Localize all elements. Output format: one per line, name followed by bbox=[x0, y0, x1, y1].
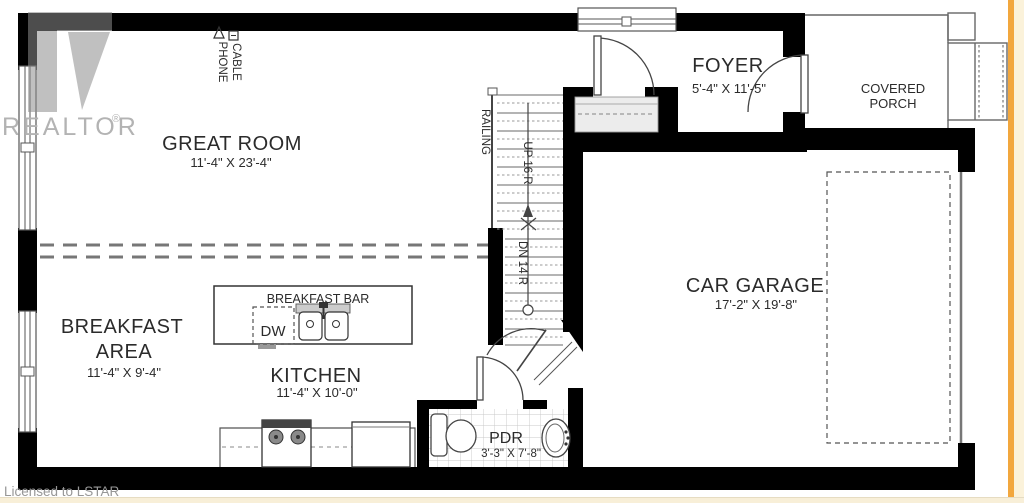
railing-label: RAILING bbox=[479, 109, 491, 155]
pdr-label: PDR bbox=[489, 430, 523, 447]
registered-mark: ® bbox=[112, 113, 120, 125]
stove bbox=[262, 420, 311, 467]
ceiling-break-lines bbox=[40, 245, 488, 257]
stairs-up-label: UP 16 R bbox=[521, 141, 533, 184]
great-room-label: GREAT ROOM bbox=[162, 133, 302, 155]
realtor-watermark-text: REALTOR ® bbox=[2, 113, 139, 141]
foyer-dims: 5'-4" X 11'-5" bbox=[692, 81, 766, 96]
license-credit: Licensed to LSTAR bbox=[4, 484, 120, 499]
floor-plan-canvas: GREAT ROOM 11'-4" X 23'-4" FOYER 5'-4" X… bbox=[0, 0, 1024, 503]
door-pdr bbox=[477, 357, 523, 400]
floor-plan: GREAT ROOM 11'-4" X 23'-4" FOYER 5'-4" X… bbox=[0, 0, 1024, 503]
dishwasher-label: DW bbox=[261, 323, 287, 340]
breakfast-area-line1: BREAKFAST bbox=[61, 316, 183, 338]
breakfast-bar-label: BREAKFAST BAR bbox=[267, 292, 370, 306]
breakfast-area-dims: 11'-4" X 9'-4" bbox=[87, 365, 161, 380]
kitchen-label: KITCHEN bbox=[270, 365, 361, 387]
door-hall-closet bbox=[594, 36, 654, 95]
garage-door-and-slab bbox=[827, 172, 961, 443]
fridge bbox=[352, 422, 410, 467]
garage-dims: 17'-2" X 19'-8" bbox=[715, 297, 798, 312]
garage-label: CAR GARAGE bbox=[686, 275, 824, 297]
foyer-closet bbox=[575, 97, 658, 132]
porch-steps-hatch bbox=[979, 45, 1003, 118]
cable-label: CABLE bbox=[230, 43, 242, 81]
breakfast-area-line2: AREA bbox=[96, 341, 153, 363]
foyer-label: FOYER bbox=[692, 55, 763, 77]
phone-label: PHONE bbox=[216, 42, 228, 83]
pdr-sink bbox=[542, 419, 570, 457]
kitchen-counter bbox=[220, 420, 415, 467]
window-top-wall bbox=[578, 8, 676, 31]
porch-label-line1: COVERED bbox=[861, 81, 925, 96]
stairs-down-label: DN 14 R bbox=[516, 241, 528, 285]
pdr-dims: 3'-3" X 7'-8" bbox=[481, 448, 541, 460]
porch-label-line2: PORCH bbox=[870, 96, 917, 111]
window-left-lower bbox=[19, 311, 36, 432]
kitchen-dims: 11'-4" X 10'-0" bbox=[276, 385, 358, 400]
realtor-watermark bbox=[28, 12, 112, 112]
great-room-dims: 11'-4" X 23'-4" bbox=[190, 155, 272, 170]
